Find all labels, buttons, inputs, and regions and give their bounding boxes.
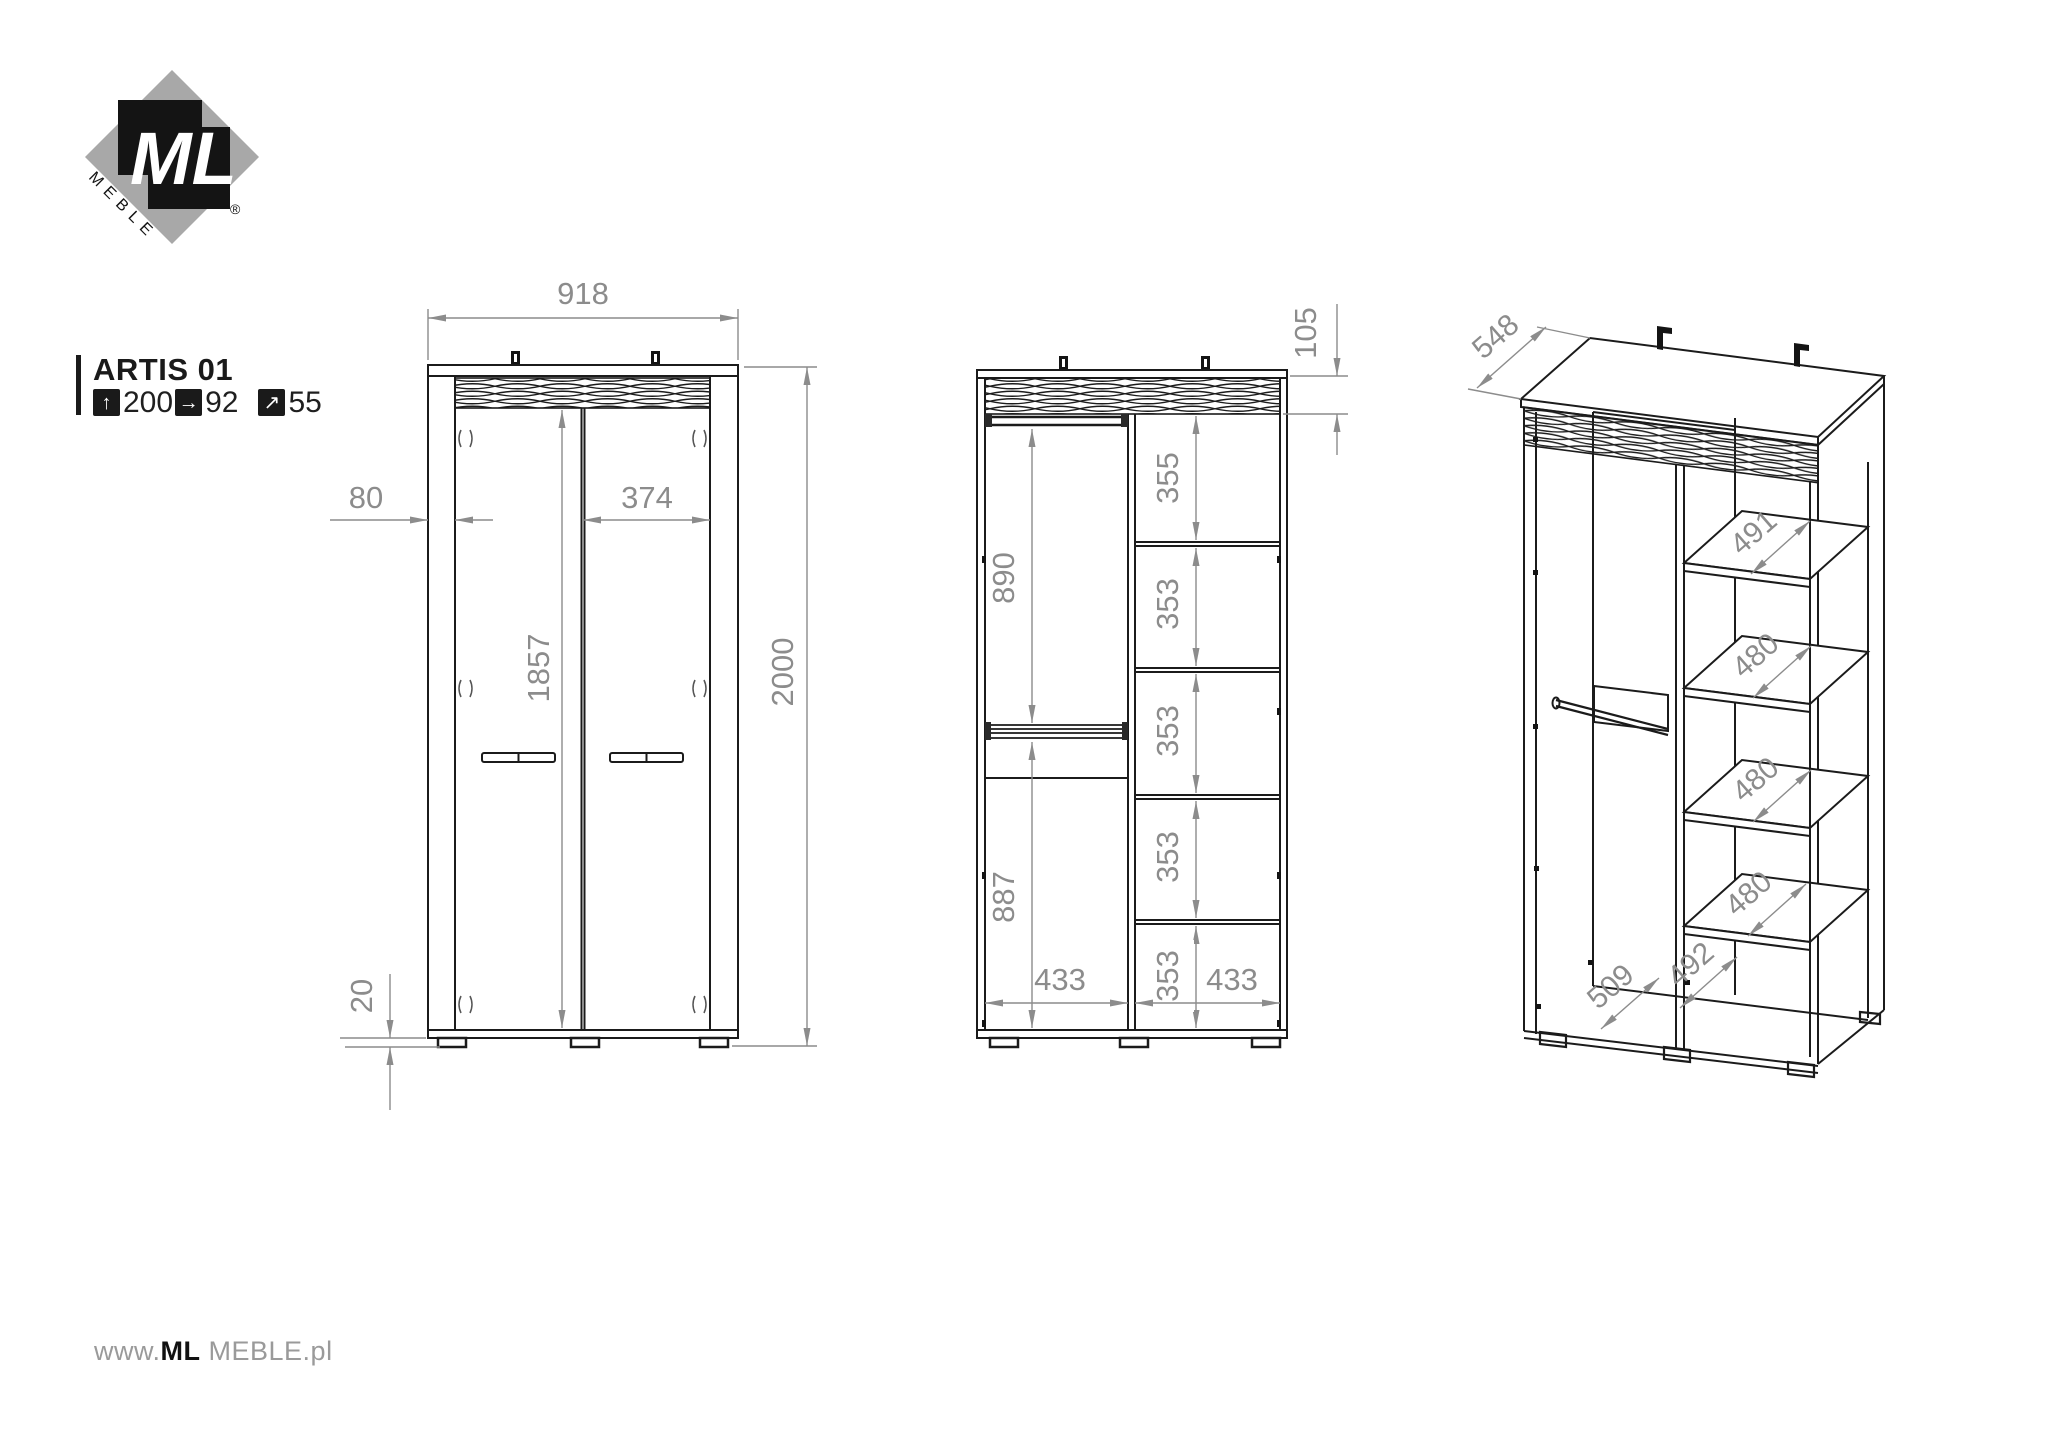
dim-label: 433 — [1034, 962, 1086, 997]
dim-label: 105 — [1288, 307, 1323, 359]
dim-label: 20 — [344, 979, 379, 1013]
dim-plinth-20: 20 — [340, 974, 440, 1110]
internal-view — [977, 356, 1287, 1047]
dim-label: 355 — [1150, 452, 1185, 504]
dim-label: 353 — [1150, 950, 1185, 1002]
front-view — [428, 351, 738, 1047]
footer-brand: ML — [161, 1336, 201, 1366]
wave-band — [455, 378, 710, 408]
dim-label: 890 — [986, 552, 1021, 604]
dim-label: 1857 — [521, 634, 556, 703]
wall-bracket-icon — [511, 351, 660, 366]
dim-label: 492 — [1661, 936, 1720, 994]
dim-bottom-right-492: 492 — [1661, 936, 1737, 1008]
front-cabinet-outline — [428, 365, 738, 1038]
dim-label: 2000 — [765, 638, 800, 707]
dim-label: 80 — [349, 480, 383, 515]
technical-drawings: 918 2000 80 374 1857 — [0, 0, 2048, 1455]
dim-height-2000: 2000 — [732, 367, 817, 1046]
internal-cabinet-outline — [977, 370, 1287, 1038]
wave-band — [985, 378, 1280, 414]
catalog-page: ML MEBLE ® ARTIS 01 ↑ 200 → 92 — [0, 0, 2048, 1455]
dim-label: 374 — [621, 480, 673, 515]
dim-label: 353 — [1150, 705, 1185, 757]
feet — [990, 1038, 1280, 1047]
feet — [1540, 1012, 1880, 1077]
dim-label: 887 — [986, 871, 1021, 923]
clothes-rail — [1553, 686, 1669, 735]
dim-label: 918 — [557, 276, 609, 311]
footer-brand-rest: MEBLE — [201, 1336, 303, 1366]
dim-width-918: 918 — [428, 276, 738, 360]
dim-label: 353 — [1150, 578, 1185, 630]
dim-label: 509 — [1581, 958, 1640, 1016]
website-footer: www.ML MEBLE.pl — [94, 1336, 333, 1367]
dim-label: 548 — [1466, 308, 1525, 366]
feet — [438, 1038, 728, 1047]
dim-crown-105: 105 — [1283, 304, 1348, 455]
footer-prefix: www. — [94, 1336, 161, 1366]
dim-label: 433 — [1206, 962, 1258, 997]
iso-shelves — [1684, 511, 1868, 950]
wall-bracket-icon — [1059, 356, 1210, 371]
footer-suffix: .pl — [303, 1336, 333, 1366]
dim-label: 353 — [1150, 831, 1185, 883]
